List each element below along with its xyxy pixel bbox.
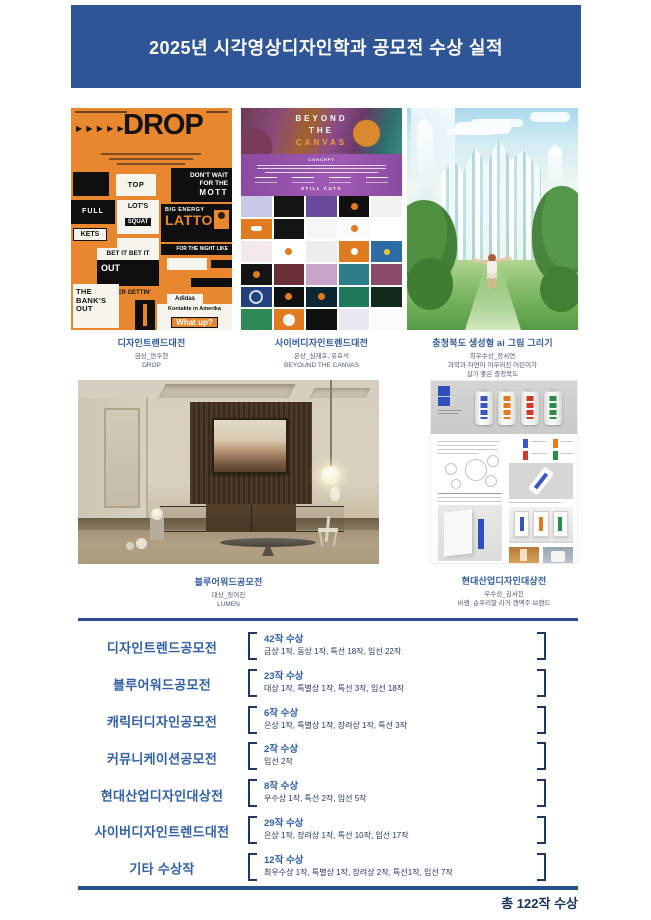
caption-design-trend: 디자인트렌드대전 금상_연수현 DROP [71, 336, 232, 370]
pendant-light [321, 466, 340, 485]
caption-work: 과학과 자연이 어우러진 어린이가 [407, 361, 578, 370]
award-detail: 최우수상 1작, 특별상 1작, 장려상 2작, 특선1작, 입선 7작 [264, 867, 453, 878]
poster1-headline: DROP [123, 109, 203, 142]
caption-title: 블루어워드공모전 [78, 575, 379, 588]
competition-name: 블루어워드공모전 [78, 675, 246, 694]
caption-award: 대상_정여진 [78, 591, 379, 600]
award-row: 현대산업디자인대상전 8작 수상 우수상 1작, 특선 2작, 입선 5작 [78, 776, 578, 813]
diagram-circle [445, 463, 457, 475]
text-line [561, 453, 573, 454]
poster2-stillcut-grid [241, 196, 402, 330]
poster1-tile-text: LOT'S [117, 203, 159, 210]
poster1-tile-text: What up? [171, 317, 217, 328]
caption-award: 은상_심재호, 유호석 [241, 352, 402, 361]
can-mockup [475, 390, 493, 425]
award-row: 사이버디자인트렌드대전 29작 수상 은상 1작, 장려상 1작, 특선 10작… [78, 813, 578, 850]
award-count: 8작 수상 [264, 778, 298, 792]
cabinet [206, 504, 296, 532]
award-detail: 은상 1작, 장려상 1작, 특선 10작, 입선 17작 [264, 830, 409, 841]
bracket-close-icon [537, 853, 546, 881]
caption-detail: 은상_심재호, 유호석 BEYOUND THE CANVAS [241, 352, 402, 370]
text-line [438, 453, 478, 454]
still-cut-tile [241, 264, 272, 285]
tote-bag-photo [543, 547, 573, 563]
bracket-open-icon [248, 632, 257, 660]
table-lamp [151, 508, 163, 520]
shelf-display-photo [438, 505, 502, 561]
still-cut-tile [371, 309, 402, 330]
table-line [438, 501, 502, 502]
bracket-open-icon [248, 742, 257, 770]
still-cut-tile [339, 264, 370, 285]
still-cut-tile [371, 219, 402, 240]
still-cut-tile [274, 287, 305, 308]
floor-vase [126, 542, 134, 550]
poster-frame [533, 511, 548, 537]
divider-rule-bottom [78, 886, 578, 890]
caption-hyundai-industrial: 현대산업디자인대상전 우수상_김서진 바램: 순우리말 라거 캔맥주 브랜드 [430, 574, 578, 608]
text-line [438, 413, 458, 414]
tree-left [407, 258, 453, 310]
poster2-title-line: CANVAS [241, 137, 402, 149]
poster-can-brand-board [430, 380, 578, 564]
poster1-tile [73, 172, 109, 196]
poster1-tile: TOP [116, 174, 156, 196]
poster1-tile: OUT [97, 260, 159, 286]
still-cut-tile [274, 219, 305, 240]
still-cut-tile [371, 287, 402, 308]
poster1-text-line [109, 158, 193, 160]
still-cut-tile [306, 309, 337, 330]
poster2-text-line [257, 165, 386, 166]
table-line [438, 493, 502, 494]
caption-award: 최우수상_장서연 [407, 352, 578, 361]
text-line [438, 449, 498, 450]
still-cut-tile [371, 196, 402, 217]
can-mockup [498, 390, 516, 425]
bracket-open-icon [248, 779, 257, 807]
poster-frame [514, 511, 529, 537]
award-row: 캐릭터디자인공모전 6작 수상 은상 1작, 특별상 1작, 장려상 1작, 특… [78, 703, 578, 740]
caption-work: BEYOUND THE CANVAS [241, 361, 402, 370]
still-cut-tile [339, 241, 370, 262]
caption-ai-drawing: 충청북도 생성형 ai 그림 그리기 최우수상_장서연 과학과 자연이 어우러진… [407, 336, 578, 379]
award-row: 디자인트렌드공모전 42작 수상 금상 1작, 동상 1작, 특선 18작, 입… [78, 629, 578, 666]
cloud [455, 122, 511, 134]
diagram-circle [487, 455, 499, 467]
award-row: 커뮤니케이션공모전 2작 수상 입선 2작 [78, 739, 578, 776]
poster2-stillcuts-label: STILL CUTS [241, 186, 402, 191]
poster1-tile: Adidas [167, 294, 203, 304]
still-cut-tile [339, 309, 370, 330]
award-count: 2작 수상 [264, 741, 298, 755]
arrows-icon: ▶ ▶ ▶ ▶ ▶ [76, 124, 125, 133]
still-cut-tile [306, 241, 337, 262]
poster2-hero: BEYOND THE CANVAS [241, 108, 402, 154]
caption-title: 사이버디자인트렌드대전 [241, 336, 402, 349]
still-cut-tile [241, 309, 272, 330]
brand-logo [438, 386, 450, 406]
bracket-close-icon [537, 742, 546, 770]
poster2-spec-label [329, 177, 351, 183]
total-award-count: 총 122작 수상 [501, 893, 578, 912]
vase [330, 486, 340, 501]
bracket-open-icon [248, 706, 257, 734]
poster1-tile: BIG ENERGY LATTO [161, 204, 232, 242]
text-line [531, 441, 547, 442]
can-swatch [553, 439, 558, 448]
award-count: 12작 수상 [264, 852, 303, 866]
poster2-text-line [257, 168, 386, 169]
tilted-can-photo [509, 463, 573, 499]
caption-blue-award: 블루어워드공모전 대상_정여진 LUMEN [78, 575, 379, 609]
text-line [509, 502, 561, 503]
shelf-left [160, 506, 206, 532]
still-cut-tile [371, 241, 402, 262]
report-page: 2025년 시각영상디자인학과 공모전 수상 실적 ▶ ▶ ▶ ▶ ▶ DROP… [0, 0, 651, 920]
caption-detail: 최우수상_장서연 과학과 자연이 어우러진 어린이가 살기 좋은 충청북도 [407, 352, 578, 379]
coffee-table [220, 538, 316, 547]
bracket-close-icon [537, 669, 546, 697]
text-line [561, 441, 573, 442]
caption-work: 살기 좋은 충청북도 [407, 370, 578, 379]
still-cut-tile [306, 219, 337, 240]
bracket-close-icon [537, 816, 546, 844]
table-line [438, 497, 502, 498]
text-line [438, 445, 496, 446]
caption-title: 충청북도 생성형 ai 그림 그리기 [407, 336, 578, 349]
poster2-spec-labels [241, 173, 402, 183]
poster1-tile-text: SQUAT [125, 218, 152, 226]
award-detail: 금상 1작, 동상 1작, 특선 18작, 입선 22작 [264, 646, 401, 657]
award-row: 블루어워드공모전 23작 수상 대상 1작, 특별상 1작, 특선 3작, 입선… [78, 666, 578, 703]
poster2-spec-label [366, 177, 388, 183]
bracket-close-icon [537, 706, 546, 734]
poster1-tile [211, 260, 232, 268]
poster-frame [553, 511, 568, 537]
bracket-open-icon [248, 669, 257, 697]
caption-award: 금상_연수현 [71, 352, 232, 361]
poster-cyber-design-trend: BEYOND THE CANVAS CONCEPT STILL CUTS [241, 108, 402, 330]
award-count: 29작 수상 [264, 815, 303, 829]
bracket-open-icon [248, 853, 257, 881]
poster1-tile: FULL [71, 200, 115, 224]
still-cut-tile [306, 287, 337, 308]
text-line [438, 410, 462, 411]
caption-work: 바램: 순우리말 라거 캔맥주 브랜드 [430, 599, 578, 608]
diagram-circle [485, 475, 497, 487]
poster1-meta-line [206, 111, 228, 113]
bracket-close-icon [537, 779, 546, 807]
page-title: 2025년 시각영상디자인학과 공모전 수상 실적 [149, 34, 503, 60]
can-mockup [528, 466, 555, 495]
award-detail: 대상 1작, 특별상 1작, 특선 3작, 입선 18작 [264, 683, 404, 694]
framed-painting [212, 418, 288, 474]
poster1-text-line [117, 163, 185, 165]
award-count: 23작 수상 [264, 668, 303, 682]
poster1-tile-text: DON'T WAIT FOR THE [177, 172, 228, 187]
caption-detail: 우수상_김서진 바램: 순우리말 라거 캔맥주 브랜드 [430, 590, 578, 608]
caption-title: 현대산업디자인대상전 [430, 574, 578, 587]
caption-award: 우수상_김서진 [430, 590, 578, 599]
child-figure [488, 278, 491, 289]
divider-rule-top [78, 618, 578, 621]
competition-name: 캐릭터디자인공모전 [78, 711, 246, 730]
can-swatch [523, 451, 528, 460]
awards-summary-list: 디자인트렌드공모전 42작 수상 금상 1작, 동상 1작, 특선 18작, 입… [78, 629, 578, 887]
pedestal [150, 518, 164, 540]
award-detail: 은상 1작, 특별상 1작, 장려상 1작, 특선 3작 [264, 720, 407, 731]
award-detail: 우수상 1작, 특선 2작, 입선 5작 [264, 793, 367, 804]
ceiling-recess [309, 388, 370, 398]
still-cut-tile [241, 196, 272, 217]
can-mockup [521, 390, 539, 425]
poster1-tile: THE BANK'S OUT [73, 284, 119, 328]
poster1-text-line [101, 153, 201, 155]
still-cut-tile [339, 219, 370, 240]
poster1-tile [167, 258, 207, 270]
competition-name: 사이버디자인트렌드대전 [78, 822, 246, 841]
caption-title: 디자인트렌드대전 [71, 336, 232, 349]
can-swatch [553, 451, 558, 460]
poster1-meta-line [75, 111, 127, 113]
poster1-tile: BET IT BET IT [97, 248, 159, 260]
diagram-circle [465, 459, 487, 481]
poster1-tile: LOT'S SQUAT [117, 200, 159, 234]
caption-work: DROP [71, 361, 232, 370]
poster2-spec-label [255, 177, 277, 183]
poster1-tile-text: MOTT [177, 189, 228, 197]
title-banner: 2025년 시각영상디자인학과 공모전 수상 실적 [71, 5, 581, 88]
caption-work: LUMEN [78, 600, 379, 609]
award-row: 기타 수상작 12작 수상 최우수상 1작, 특별상 1작, 장려상 2작, 특… [78, 850, 578, 887]
award-count: 6작 수상 [264, 705, 298, 719]
poster2-title-line: THE [241, 125, 402, 137]
still-cut-tile [339, 287, 370, 308]
competition-name: 기타 수상작 [78, 859, 246, 878]
poster2-concept-band: CONCEPT STILL CUTS [241, 154, 402, 196]
poster1-tile: DON'T WAIT FOR THE MOTT [171, 168, 232, 202]
poster-ai-illustration [407, 108, 578, 330]
poster-design-trend: ▶ ▶ ▶ ▶ ▶ DROP TOP DON'T WAIT FOR THE MO… [71, 108, 232, 330]
can-swatch [523, 439, 528, 448]
competition-name: 디자인트렌드공모전 [78, 638, 246, 657]
text-line [531, 453, 547, 454]
award-count: 42작 수상 [264, 631, 303, 645]
bracket-open-icon [248, 816, 257, 844]
poster1-tile: Kontakte in Amerika What up? ich frage s… [157, 304, 232, 330]
still-cut-tile [274, 309, 305, 330]
poster1-tile [191, 278, 232, 287]
portrait-figure [214, 210, 229, 229]
award-detail: 입선 2작 [264, 756, 293, 767]
still-cut-tile [371, 264, 402, 285]
caption-cyber-design-trend: 사이버디자인트렌드대전 은상_심재호, 유호석 BEYOUND THE CANV… [241, 336, 402, 370]
pendant-cord [330, 380, 332, 468]
competition-name: 현대산업디자인대상전 [78, 785, 246, 804]
wall-panel [104, 408, 140, 508]
tree-right [540, 266, 578, 312]
poster1-tile: FOR THE NIGHT LIKE [161, 244, 232, 255]
still-cut-tile [306, 264, 337, 285]
still-cut-tile [274, 264, 305, 285]
competition-name: 커뮤니케이션공모전 [78, 748, 246, 767]
cloud [530, 112, 570, 122]
can-mockup [544, 390, 562, 425]
diagram-circle [451, 479, 461, 489]
poster2-title-line: BEYOND [241, 108, 402, 125]
framed-posters-photo [509, 507, 573, 543]
still-cut-tile [241, 219, 272, 240]
caption-detail: 대상_정여진 LUMEN [78, 591, 379, 609]
bracket-close-icon [537, 632, 546, 660]
poster-interior-lumen [78, 380, 379, 564]
still-cut-tile [241, 287, 272, 308]
still-cut-tile [339, 196, 370, 217]
poster1-tile: KETS [73, 228, 107, 241]
poster1-tile [135, 300, 155, 330]
caption-detail: 금상_연수현 DROP [71, 352, 232, 370]
still-cut-tile [241, 241, 272, 262]
text-line [438, 441, 500, 442]
ceiling-recess [158, 384, 295, 398]
poster2-concept-label: CONCEPT [241, 154, 402, 162]
poster2-spec-label [292, 177, 314, 183]
floor-vase [136, 538, 147, 549]
beer-glass-photo [509, 547, 539, 563]
still-cut-tile [274, 196, 305, 217]
still-cut-tile [274, 241, 305, 262]
still-cut-tile [306, 196, 337, 217]
